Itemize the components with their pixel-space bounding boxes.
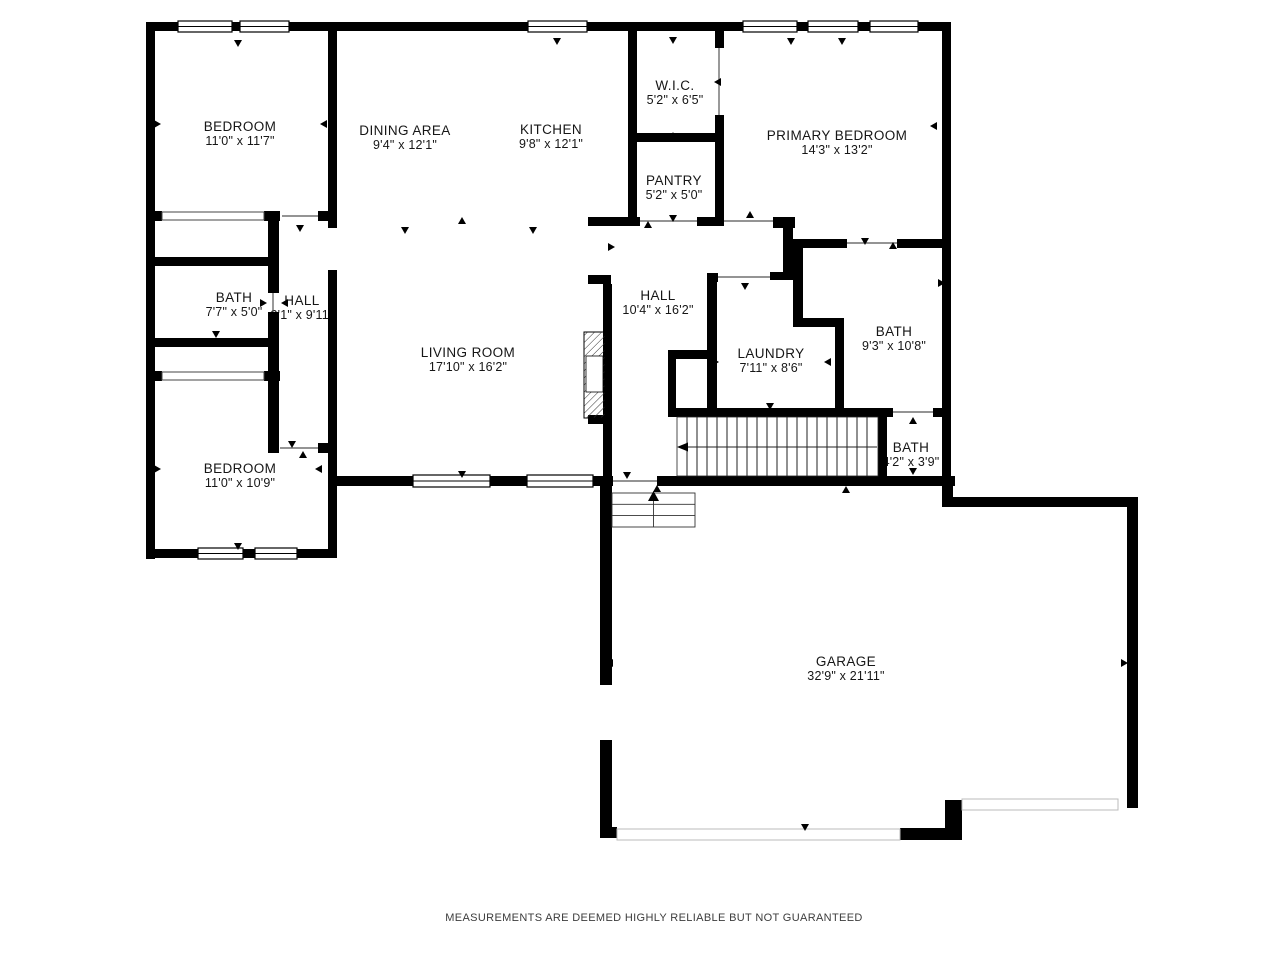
room-dims: 9'4" x 12'1" xyxy=(359,138,450,153)
room-label-garage: GARAGE 32'9" x 21'11" xyxy=(807,654,884,684)
room-name: HALL xyxy=(622,288,693,303)
room-label-hall-center: HALL 10'4" x 16'2" xyxy=(622,288,693,318)
room-label-bedroom-bottom: BEDROOM 11'0" x 10'9" xyxy=(204,461,277,491)
room-label-pantry: PANTRY 5'2" x 5'0" xyxy=(646,173,703,203)
room-name: BEDROOM xyxy=(204,461,277,476)
room-dims: 7'11" x 8'6" xyxy=(737,361,804,376)
floor-plan-page: BEDROOM 11'0" x 11'7" DINING AREA 9'4" x… xyxy=(0,0,1280,960)
room-dims: 7'7" x 5'0" xyxy=(206,305,263,320)
room-label-bath-small: BATH 4'2" x 3'9" xyxy=(883,440,940,470)
room-name: GARAGE xyxy=(807,654,884,669)
room-name: KITCHEN xyxy=(519,122,583,137)
room-label-layer: BEDROOM 11'0" x 11'7" DINING AREA 9'4" x… xyxy=(0,0,1280,960)
room-dims: 9'8" x 12'1" xyxy=(519,137,583,152)
room-label-dining-area: DINING AREA 9'4" x 12'1" xyxy=(359,123,450,153)
room-name: DINING AREA xyxy=(359,123,450,138)
room-name: HALL xyxy=(270,293,333,308)
room-dims: 5'2" x 5'0" xyxy=(646,188,703,203)
room-label-wic: W.I.C. 5'2" x 6'5" xyxy=(647,78,704,108)
room-name: PRIMARY BEDROOM xyxy=(767,128,908,143)
room-label-kitchen: KITCHEN 9'8" x 12'1" xyxy=(519,122,583,152)
room-name: PANTRY xyxy=(646,173,703,188)
room-name: BATH xyxy=(862,324,926,339)
room-label-hall-left: HALL 3'1" x 9'11" xyxy=(270,293,333,323)
room-label-living-room: LIVING ROOM 17'10" x 16'2" xyxy=(421,345,515,375)
room-dims: 4'2" x 3'9" xyxy=(883,455,940,470)
room-name: LIVING ROOM xyxy=(421,345,515,360)
room-name: BATH xyxy=(206,290,263,305)
room-label-laundry: LAUNDRY 7'11" x 8'6" xyxy=(737,346,804,376)
room-name: LAUNDRY xyxy=(737,346,804,361)
room-dims: 32'9" x 21'11" xyxy=(807,669,884,684)
room-label-bath-left: BATH 7'7" x 5'0" xyxy=(206,290,263,320)
room-dims: 10'4" x 16'2" xyxy=(622,303,693,318)
room-dims: 14'3" x 13'2" xyxy=(767,143,908,158)
room-dims: 3'1" x 9'11" xyxy=(270,308,333,323)
room-label-bath-primary: BATH 9'3" x 10'8" xyxy=(862,324,926,354)
room-name: BATH xyxy=(883,440,940,455)
room-dims: 11'0" x 11'7" xyxy=(204,134,277,149)
room-dims: 9'3" x 10'8" xyxy=(862,339,926,354)
room-dims: 17'10" x 16'2" xyxy=(421,360,515,375)
room-name: BEDROOM xyxy=(204,119,277,134)
room-name: W.I.C. xyxy=(647,78,704,93)
room-dims: 11'0" x 10'9" xyxy=(204,476,277,491)
room-dims: 5'2" x 6'5" xyxy=(647,93,704,108)
room-label-bedroom-top: BEDROOM 11'0" x 11'7" xyxy=(204,119,277,149)
room-label-primary-bedroom: PRIMARY BEDROOM 14'3" x 13'2" xyxy=(767,128,908,158)
disclaimer-text: MEASUREMENTS ARE DEEMED HIGHLY RELIABLE … xyxy=(445,912,862,924)
